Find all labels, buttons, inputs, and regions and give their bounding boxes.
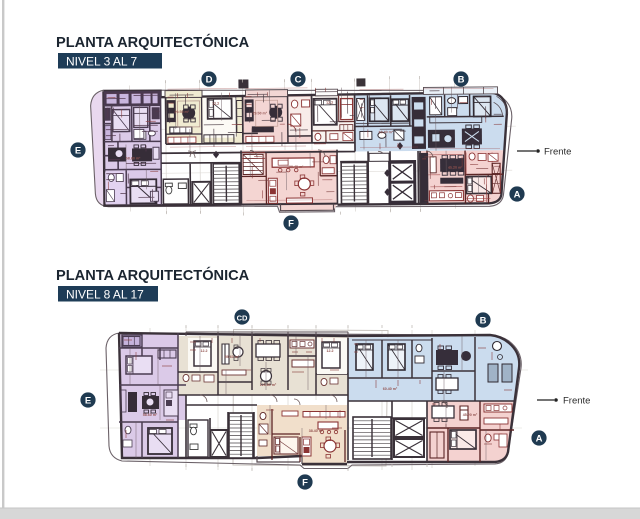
svg-text:45.20 m²: 45.20 m²: [448, 166, 463, 170]
svg-text:E: E: [85, 396, 91, 407]
svg-text:58.60 m²: 58.60 m²: [143, 413, 158, 417]
svg-text:Frente: Frente: [544, 147, 571, 158]
svg-text:D: D: [206, 75, 213, 86]
svg-text:12.2: 12.2: [326, 101, 333, 105]
svg-text:F: F: [288, 219, 294, 230]
svg-text:F: F: [302, 478, 308, 489]
svg-text:12.2: 12.2: [327, 349, 334, 353]
svg-text:E: E: [75, 146, 81, 157]
svg-text:60.40 m²: 60.40 m²: [379, 130, 394, 134]
svg-text:NIVEL 8 AL 17: NIVEL 8 AL 17: [66, 288, 144, 302]
svg-text:38.40 m²: 38.40 m²: [309, 429, 324, 433]
svg-text:B: B: [458, 75, 465, 86]
svg-text:58.60 m²: 58.60 m²: [126, 156, 141, 160]
svg-text:29.50 m²: 29.50 m²: [252, 111, 267, 115]
svg-text:12.2: 12.2: [201, 349, 208, 353]
svg-text:38.40 m²: 38.40 m²: [289, 165, 304, 169]
svg-text:PLANTA ARQUITECTÓNICA: PLANTA ARQUITECTÓNICA: [56, 33, 250, 51]
svg-text:59.60 m²: 59.60 m²: [225, 355, 240, 359]
svg-text:120.80 m²: 120.80 m²: [260, 383, 277, 387]
svg-text:29.50 m²: 29.50 m²: [174, 110, 189, 114]
svg-text:CD: CD: [237, 313, 248, 322]
svg-text:C: C: [295, 75, 302, 86]
svg-text:60.40 m²: 60.40 m²: [383, 387, 398, 391]
svg-text:12.2: 12.2: [212, 102, 219, 106]
svg-text:A: A: [514, 190, 521, 201]
svg-text:Frente: Frente: [563, 396, 590, 407]
svg-text:NIVEL 3 AL 7: NIVEL 3 AL 7: [66, 55, 137, 69]
svg-text:45.20 m²: 45.20 m²: [463, 413, 478, 417]
svg-text:B: B: [480, 316, 487, 327]
svg-text:A: A: [536, 434, 543, 445]
svg-text:PLANTA ARQUITECTÓNICA: PLANTA ARQUITECTÓNICA: [56, 266, 250, 284]
